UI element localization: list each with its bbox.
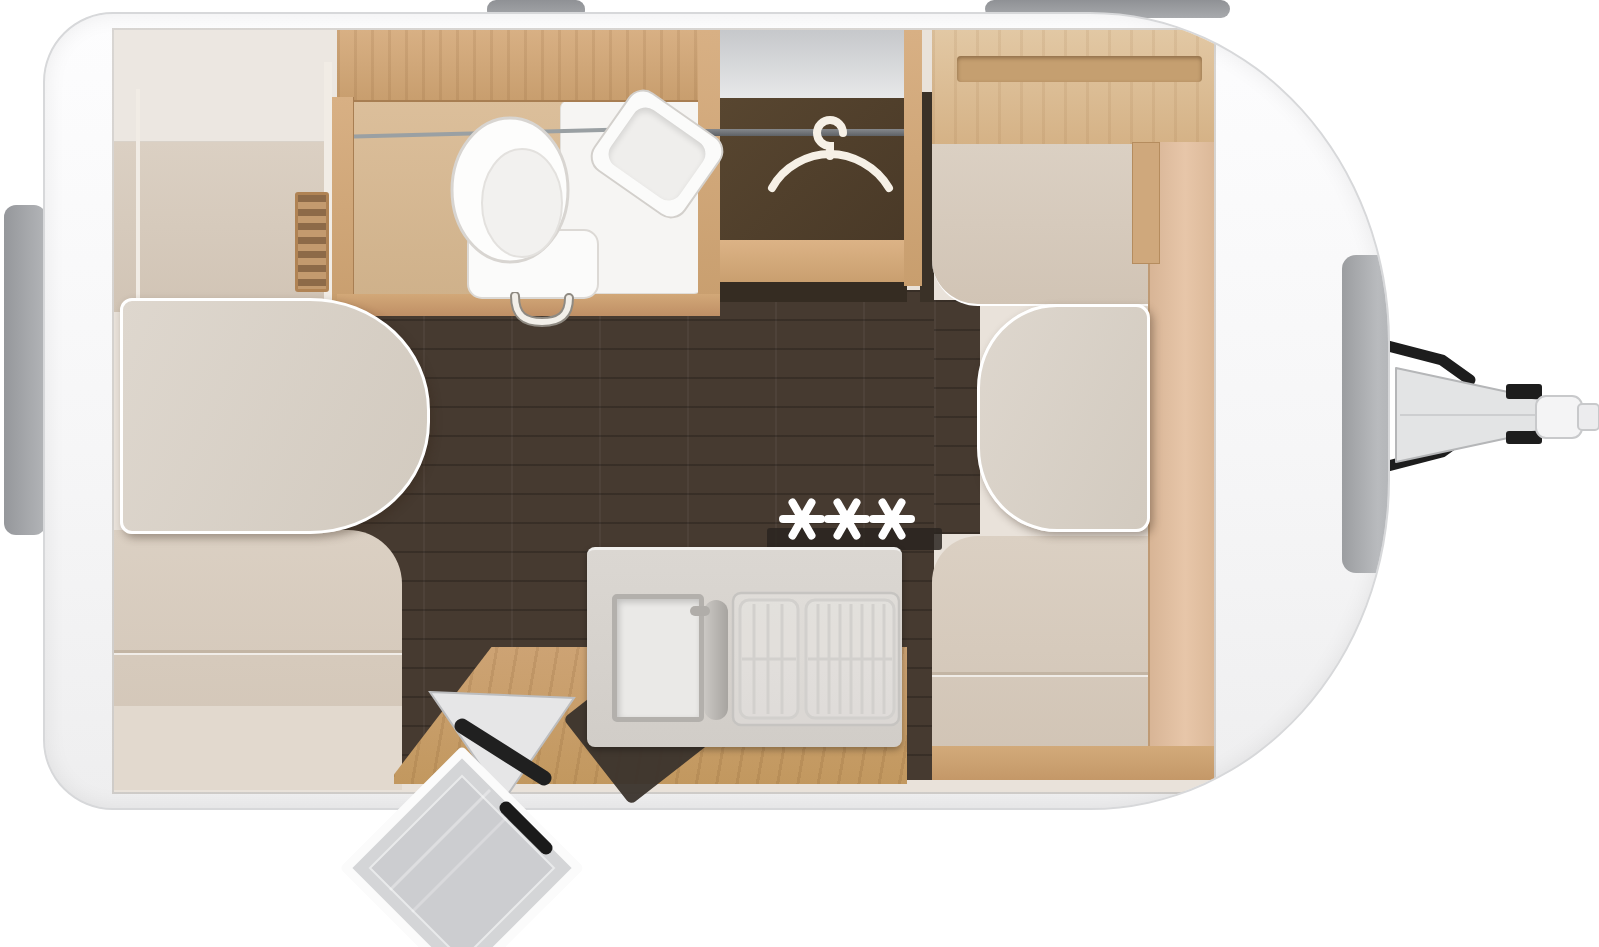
hitch-coupling-nose bbox=[1578, 404, 1599, 430]
hitch-coupling-head bbox=[1536, 396, 1582, 438]
rear-bench-backrest-gap bbox=[136, 89, 140, 319]
kitchen-faucet bbox=[704, 600, 728, 720]
toilet bbox=[440, 105, 610, 305]
wardrobe-shadow bbox=[720, 282, 907, 302]
wardrobe-top-locker bbox=[720, 30, 907, 98]
hob-grates bbox=[730, 590, 902, 728]
bathroom-left-wall bbox=[332, 97, 354, 314]
gas-locker-lid bbox=[1342, 255, 1390, 573]
burner-asterisks-icon bbox=[777, 490, 917, 548]
front-bottom-trim bbox=[932, 746, 1214, 780]
wardrobe-shelf bbox=[720, 240, 907, 282]
rear-dinette-wall-shelf bbox=[114, 30, 337, 142]
caravan-body bbox=[43, 12, 1390, 810]
front-dinette-headboard bbox=[932, 30, 1214, 144]
front-dinette-table bbox=[977, 304, 1150, 532]
hitch-handbrake bbox=[1506, 384, 1542, 399]
window-rear bbox=[4, 205, 46, 535]
hitch-drawbar bbox=[1370, 320, 1599, 490]
clothes-hanger-icon bbox=[764, 102, 897, 204]
wall-heater bbox=[295, 192, 329, 292]
bathroom-door-handle bbox=[507, 292, 577, 328]
front-bench-top-cushion bbox=[932, 144, 1148, 306]
rear-dinette-table bbox=[120, 298, 430, 534]
front-bench-bottom-cushion bbox=[932, 536, 1148, 762]
caravan-floorplan bbox=[0, 0, 1599, 947]
headboard-groove bbox=[957, 56, 1202, 82]
toilet-lid bbox=[482, 149, 562, 257]
wardrobe-right-wall bbox=[904, 30, 922, 286]
corner-post bbox=[1132, 142, 1160, 264]
interior-cutaway bbox=[114, 30, 1214, 792]
entry-door-group bbox=[320, 640, 640, 947]
floor-front-aisle bbox=[934, 300, 980, 534]
